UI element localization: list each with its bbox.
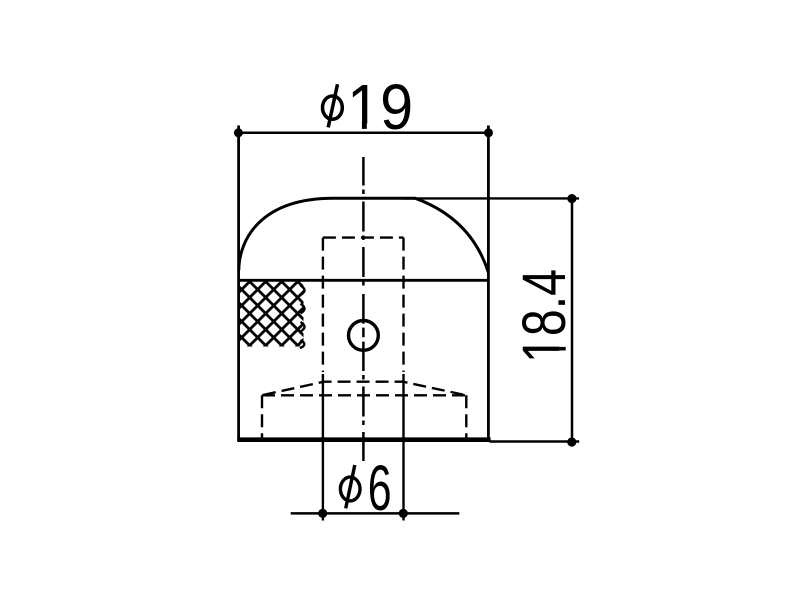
svg-text:6: 6 [368,452,392,524]
svg-text:18.4: 18.4 [510,269,578,363]
svg-text:19: 19 [347,71,413,143]
